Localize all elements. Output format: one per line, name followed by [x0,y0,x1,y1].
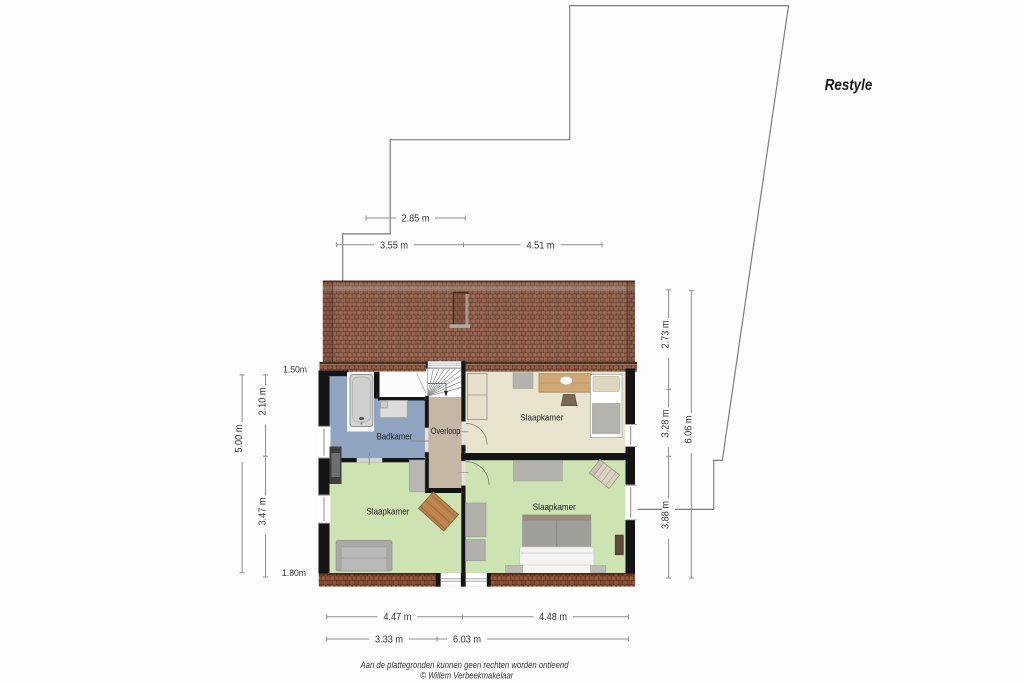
svg-text:Slaapkamer: Slaapkamer [366,506,409,516]
svg-text:Aan de plattegronden kunnen ge: Aan de plattegronden kunnen geen rechten… [360,659,569,670]
svg-text:3.33 m: 3.33 m [375,635,403,646]
svg-text:6.03 m: 6.03 m [453,635,481,646]
svg-text:Slaapkamer: Slaapkamer [520,413,563,423]
svg-text:1.50m: 1.50m [283,364,307,374]
svg-text:Restyle: Restyle [825,77,873,94]
svg-text:Slaapkamer: Slaapkamer [533,502,576,512]
svg-text:2.10 m: 2.10 m [258,388,269,416]
svg-text:4.51 m: 4.51 m [527,240,555,251]
svg-text:4.47 m: 4.47 m [383,612,411,623]
svg-text:3.47 m: 3.47 m [258,498,269,526]
svg-text:6.06 m: 6.06 m [683,416,694,444]
svg-text:3.55 m: 3.55 m [380,240,408,251]
svg-text:5.00 m: 5.00 m [234,425,245,453]
svg-text:© Willem Verbeekmakelaar: © Willem Verbeekmakelaar [420,669,514,680]
svg-text:3.28 m: 3.28 m [661,410,672,438]
svg-text:Overloop: Overloop [431,426,461,436]
svg-text:1.80m: 1.80m [282,568,306,578]
svg-text:Badkamer: Badkamer [377,431,413,441]
svg-text:4.48 m: 4.48 m [539,612,567,623]
svg-text:2.85 m: 2.85 m [402,214,430,225]
svg-text:2.73 m: 2.73 m [661,321,672,349]
svg-text:3.88 m: 3.88 m [661,501,672,529]
